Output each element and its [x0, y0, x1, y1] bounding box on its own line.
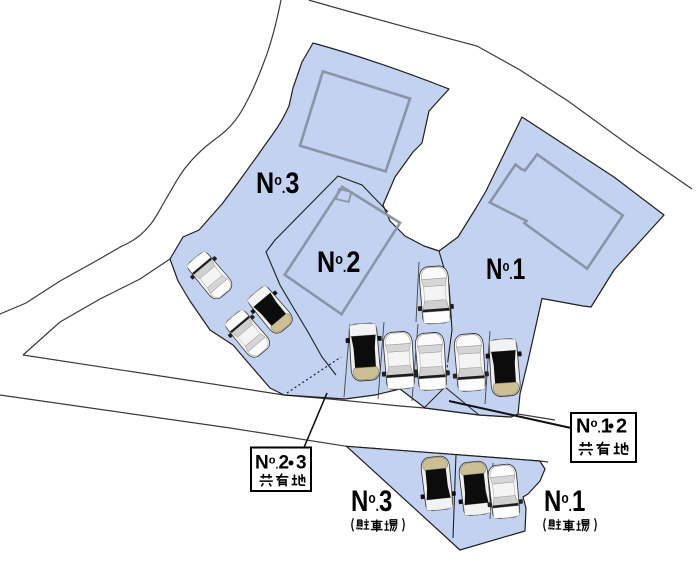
svg-text:3: 3 — [296, 453, 307, 474]
svg-text:2: 2 — [616, 416, 627, 438]
